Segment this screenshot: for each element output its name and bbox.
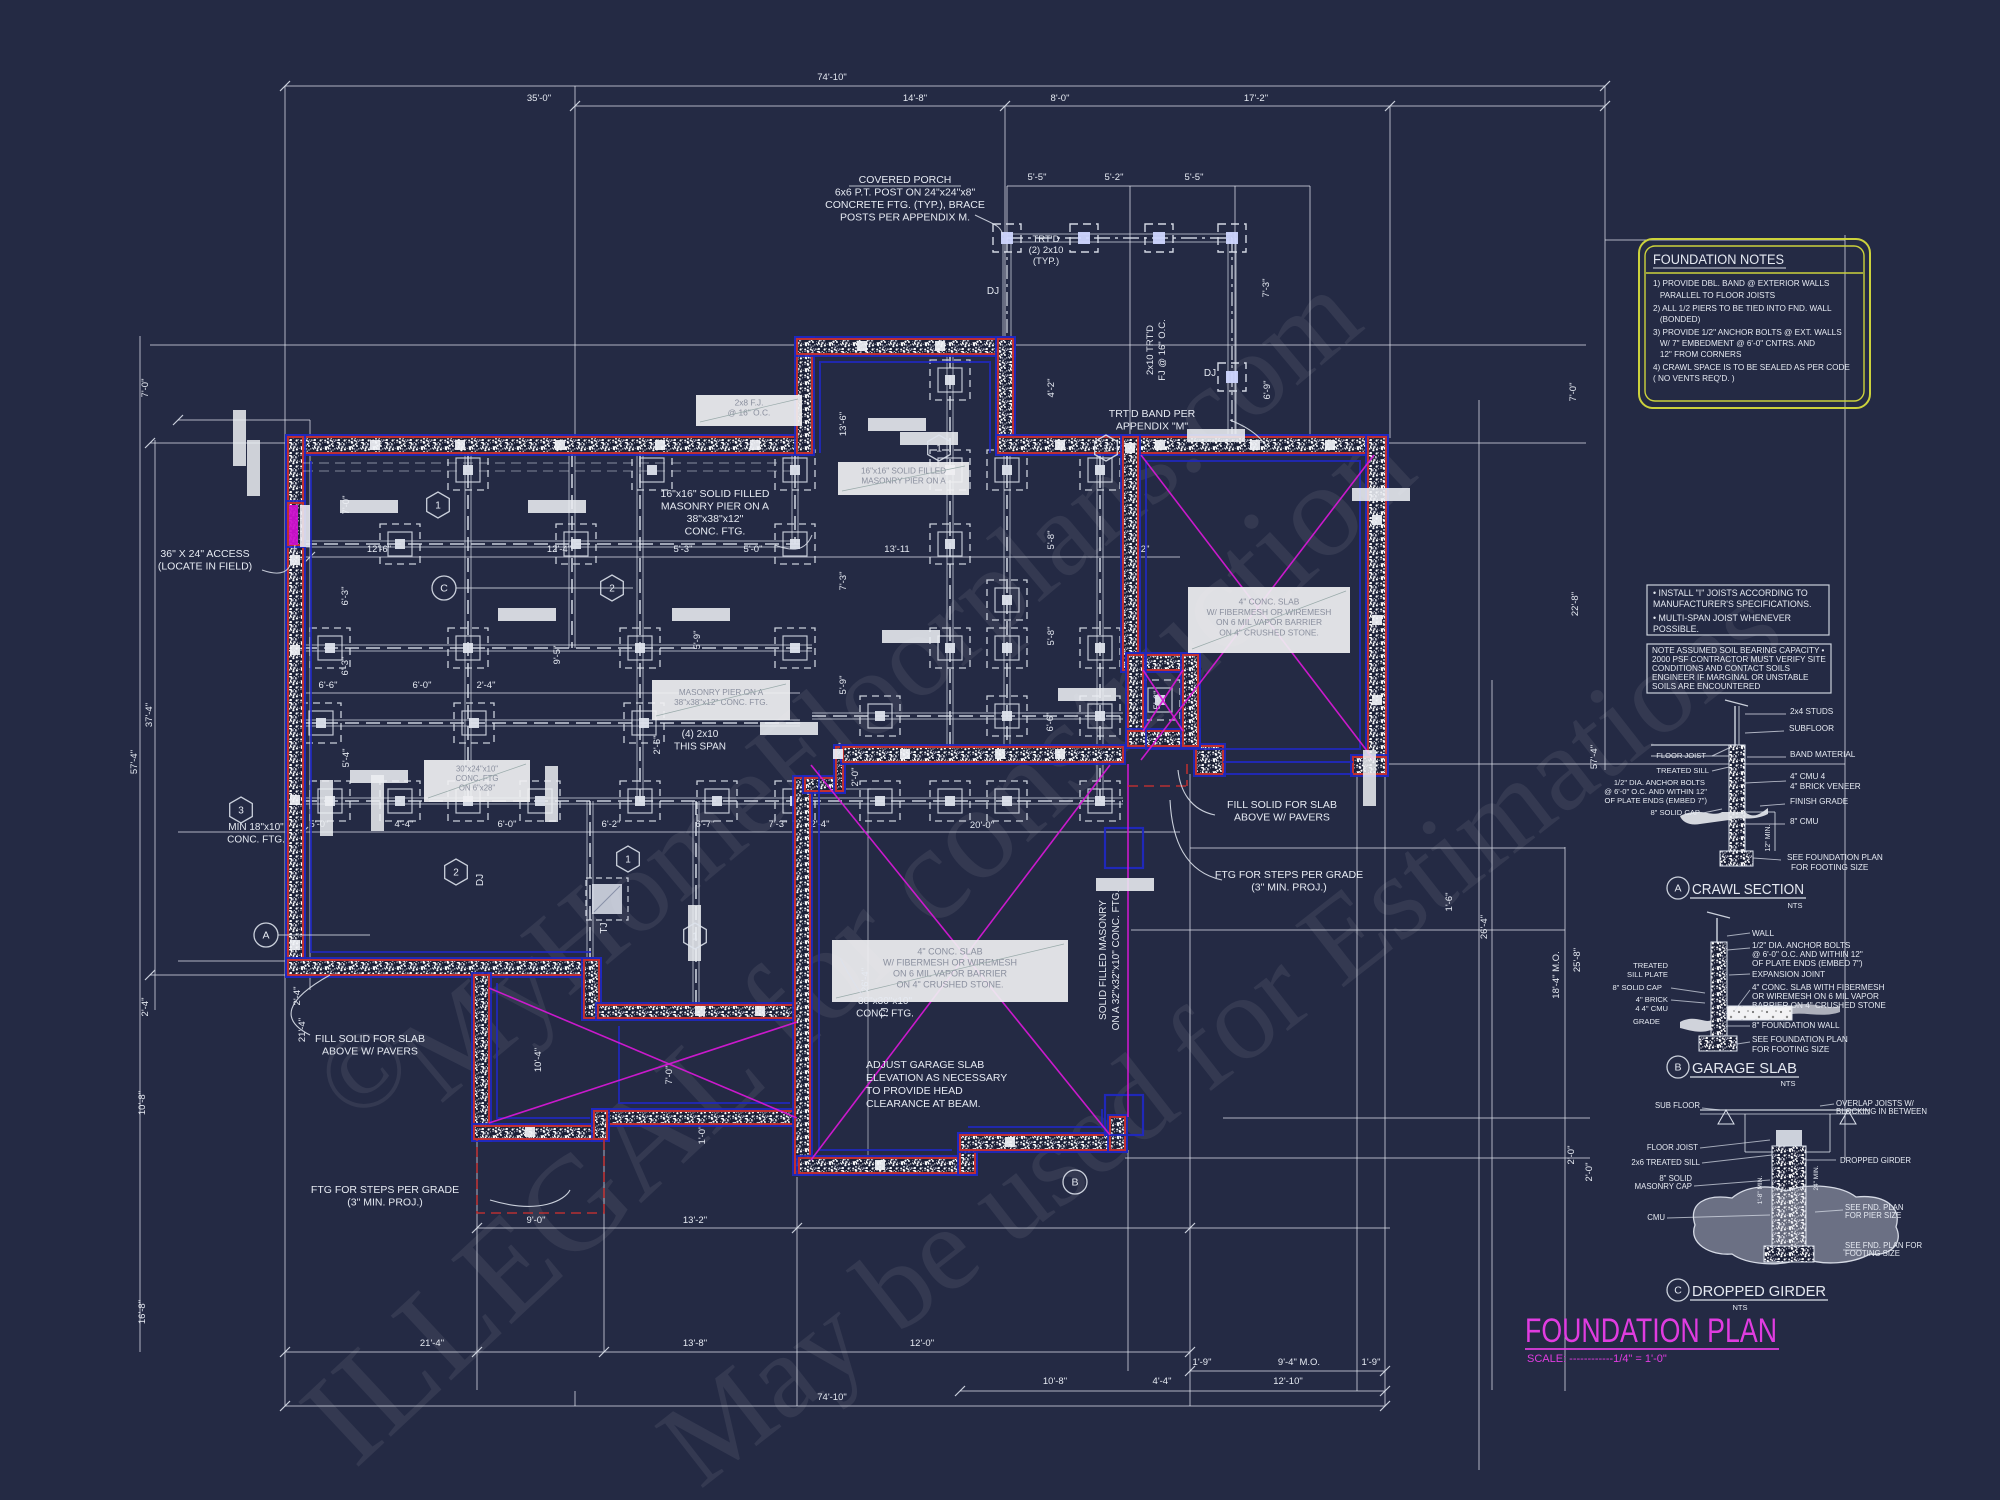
svg-text:5'-9": 5'-9" [838, 676, 849, 695]
svg-text:4" CMU 4: 4" CMU 4 [1790, 772, 1826, 781]
svg-text:NTS: NTS [1733, 1303, 1748, 1312]
svg-text:(LOCATE IN FIELD): (LOCATE IN FIELD) [158, 561, 252, 573]
svg-text:(TYP.): (TYP.) [1033, 256, 1059, 267]
svg-text:5'-3": 5'-3" [674, 544, 693, 555]
svg-text:ON 6"x28": ON 6"x28" [459, 784, 496, 793]
svg-text:BAND MATERIAL: BAND MATERIAL [1790, 750, 1856, 759]
svg-text:ABOVE W/ PAVERS: ABOVE W/ PAVERS [1234, 812, 1330, 824]
svg-text:CONC. FTG: CONC. FTG [456, 774, 499, 783]
svg-text:BARRIER ON 4" CRUSHED STONE: BARRIER ON 4" CRUSHED STONE [1752, 1001, 1886, 1010]
svg-text:WALL: WALL [1752, 929, 1774, 938]
svg-text:74'-10": 74'-10" [817, 72, 846, 83]
svg-text:7'-3": 7'-3" [1261, 279, 1272, 298]
svg-text:GARAGE SLAB: GARAGE SLAB [1692, 1060, 1797, 1077]
svg-text:4" BRICK VENEER: 4" BRICK VENEER [1790, 782, 1861, 791]
svg-text:FJ @ 16" O.C.: FJ @ 16" O.C. [1157, 319, 1168, 381]
svg-text:POSSIBLE.: POSSIBLE. [1653, 624, 1699, 634]
svg-text:2000 PSF CONTRACTOR MUST VERIF: 2000 PSF CONTRACTOR MUST VERIFY SITE [1652, 655, 1826, 664]
svg-text:CONC. FTG.: CONC. FTG. [856, 1009, 914, 1020]
svg-text:( NO VENTS REQ'D. ): ( NO VENTS REQ'D. ) [1653, 374, 1735, 383]
svg-text:• MULTI-SPAN JOIST WHENEVER: • MULTI-SPAN JOIST WHENEVER [1653, 613, 1791, 623]
svg-text:1: 1 [692, 932, 698, 943]
svg-text:SUBFLOOR: SUBFLOOR [1789, 724, 1834, 733]
svg-text:1/2" DIA. ANCHOR BOLTS: 1/2" DIA. ANCHOR BOLTS [1752, 941, 1851, 950]
svg-text:10'-8": 10'-8" [1043, 1376, 1067, 1387]
svg-text:@ 16" O.C.: @ 16" O.C. [728, 408, 771, 418]
svg-text:MANUFACTURER'S SPECIFICATIONS.: MANUFACTURER'S SPECIFICATIONS. [1653, 599, 1811, 609]
svg-text:57'-4": 57'-4" [1589, 745, 1600, 769]
svg-text:6x6 P.T. POST ON 24"x24"x8": 6x6 P.T. POST ON 24"x24"x8" [835, 187, 976, 199]
svg-text:ON A 32"x32"x10" CONC. FTG.: ON A 32"x32"x10" CONC. FTG. [1111, 890, 1122, 1031]
svg-text:NOTE ASSUMED SOIL BEARING CAPA: NOTE ASSUMED SOIL BEARING CAPACITY • [1652, 646, 1825, 655]
svg-text:OF PLATE ENDS (EMBED 7"): OF PLATE ENDS (EMBED 7") [1752, 959, 1863, 968]
svg-text:2'-4": 2'-4" [477, 680, 496, 691]
svg-text:13'-8": 13'-8" [683, 1338, 707, 1349]
svg-text:1'-8" MIN.: 1'-8" MIN. [1757, 1176, 1764, 1205]
svg-text:MASONRY PIER ON A: MASONRY PIER ON A [661, 501, 769, 513]
svg-text:TO PROVIDE HEAD: TO PROVIDE HEAD [866, 1085, 963, 1097]
svg-text:1: 1 [936, 444, 942, 455]
svg-text:(3" MIN. PROJ.): (3" MIN. PROJ.) [347, 1197, 422, 1209]
svg-text:38"x38"x12": 38"x38"x12" [687, 513, 744, 525]
svg-text:13'-2": 13'-2" [683, 1215, 707, 1226]
svg-text:TREATED SILL: TREATED SILL [1656, 766, 1709, 775]
svg-text:DJ: DJ [475, 874, 486, 886]
svg-text:7'-0": 7'-0" [140, 379, 151, 398]
svg-text:GRADE: GRADE [1633, 1017, 1660, 1026]
svg-text:FLOOR JOIST: FLOOR JOIST [1656, 751, 1706, 760]
svg-text:CRAWL SECTION: CRAWL SECTION [1692, 881, 1804, 898]
svg-text:FTG FOR STEPS PER GRADE: FTG FOR STEPS PER GRADE [1215, 869, 1363, 881]
svg-text:12" MIN.: 12" MIN. [1765, 824, 1772, 851]
svg-text:FTG FOR STEPS PER GRADE: FTG FOR STEPS PER GRADE [311, 1184, 459, 1196]
svg-text:4" CONC. SLAB: 4" CONC. SLAB [917, 946, 982, 956]
svg-text:TRT'D: TRT'D [1033, 234, 1060, 245]
svg-text:16'-8": 16'-8" [137, 1300, 148, 1324]
svg-text:2: 2 [453, 868, 459, 879]
svg-text:TREATED: TREATED [1633, 961, 1668, 970]
svg-text:6'-2": 6'-2" [602, 819, 621, 830]
svg-text:MIN 18"x10": MIN 18"x10" [228, 822, 284, 833]
svg-text:@ 6'-0" O.C. AND WITHIN 12": @ 6'-0" O.C. AND WITHIN 12" [1604, 787, 1707, 796]
svg-text:2x10 TRT'D: 2x10 TRT'D [1145, 325, 1156, 375]
svg-text:30"x30"x10": 30"x30"x10" [858, 996, 912, 1007]
svg-text:26'-4": 26'-4" [860, 968, 871, 992]
svg-text:NTS: NTS [1781, 1079, 1796, 1088]
svg-text:1: 1 [625, 855, 631, 866]
svg-text:10'-8": 10'-8" [137, 1091, 148, 1115]
svg-text:MASONRY CAP: MASONRY CAP [1635, 1182, 1692, 1191]
svg-text:FILL SOLID FOR SLAB: FILL SOLID FOR SLAB [315, 1033, 425, 1045]
svg-text:ENGINEER IF MARGINAL OR UNSTAB: ENGINEER IF MARGINAL OR UNSTABLE [1652, 673, 1809, 682]
svg-text:B: B [1071, 1177, 1078, 1189]
svg-text:W/ FIBERMESH OR WIREMESH: W/ FIBERMESH OR WIREMESH [883, 957, 1017, 967]
svg-text:4 4" CMU: 4 4" CMU [1635, 1004, 1668, 1013]
svg-text:35'-0": 35'-0" [527, 93, 551, 104]
svg-text:6'-9": 6'-9" [1262, 381, 1273, 400]
svg-text:5'-4": 5'-4" [341, 749, 352, 768]
svg-text:16"x16" SOLID FILLED: 16"x16" SOLID FILLED [660, 488, 769, 500]
svg-text:20'-0": 20'-0" [970, 820, 994, 831]
svg-text:8'-0": 8'-0" [1051, 93, 1070, 104]
svg-text:10'-4": 10'-4" [533, 1048, 544, 1072]
svg-text:1'-9": 1'-9" [1362, 1357, 1381, 1368]
svg-text:1/2" DIA. ANCHOR BOLTS: 1/2" DIA. ANCHOR BOLTS [1614, 778, 1705, 787]
svg-text:7'-0": 7'-0" [1568, 383, 1579, 402]
svg-text:2x4 STUDS: 2x4 STUDS [1790, 707, 1834, 716]
svg-text:6'-3": 6'-3" [340, 587, 351, 606]
svg-text:5'-0": 5'-0" [744, 544, 763, 555]
svg-text:SILL PLATE: SILL PLATE [1627, 970, 1668, 979]
svg-text:DJ: DJ [987, 286, 999, 297]
svg-text:6'-0": 6'-0" [413, 680, 432, 691]
svg-text:37'-4": 37'-4" [144, 703, 155, 727]
svg-text:SUB FLOOR: SUB FLOOR [1655, 1101, 1700, 1110]
svg-text:4'-2": 4'-2" [1046, 379, 1057, 398]
svg-text:12'-10": 12'-10" [1273, 1376, 1302, 1387]
svg-text:CONC. FTG.: CONC. FTG. [227, 835, 285, 846]
svg-text:@ 6'-0" O.C. AND WITHIN 12": @ 6'-0" O.C. AND WITHIN 12" [1752, 950, 1863, 959]
svg-text:24" MIN.: 24" MIN. [1813, 1165, 1820, 1190]
svg-text:W/ 7" EMBEDMENT @ 6'-0" CNTRS.: W/ 7" EMBEDMENT @ 6'-0" CNTRS. AND [1653, 339, 1815, 348]
svg-text:C: C [1674, 1285, 1682, 1297]
svg-text:SOILS ARE ENCOUNTERED: SOILS ARE ENCOUNTERED [1652, 682, 1760, 691]
svg-text:74'-10": 74'-10" [817, 1392, 846, 1403]
svg-text:COVERED PORCH: COVERED PORCH [859, 174, 952, 186]
svg-text:8" CMU: 8" CMU [1790, 817, 1818, 826]
svg-text:8" SOLID CAP: 8" SOLID CAP [1650, 808, 1700, 817]
svg-text:3) PROVIDE 1/2" ANCHOR BOLTS @: 3) PROVIDE 1/2" ANCHOR BOLTS @ EXT. WALL… [1653, 328, 1842, 337]
svg-text:• INSTALL "I" JOISTS ACCORDIN: • INSTALL "I" JOISTS ACCORDING TO [1653, 588, 1808, 598]
svg-text:CMU: CMU [1647, 1213, 1665, 1222]
svg-text:4) CRAWL SPACE IS TO BE SEALED: 4) CRAWL SPACE IS TO BE SEALED AS PER CO… [1653, 363, 1850, 372]
svg-text:(3" MIN. PROJ.): (3" MIN. PROJ.) [1251, 882, 1326, 894]
svg-text:17'-2": 17'-2" [1244, 93, 1268, 104]
svg-text:22'-8": 22'-8" [1570, 592, 1581, 616]
svg-text:TJ: TJ [599, 922, 610, 933]
svg-text:B: B [1674, 1062, 1681, 1074]
svg-text:5'-5": 5'-5" [1185, 172, 1204, 183]
svg-text:6'-0": 6'-0" [498, 819, 517, 830]
svg-text:38"x38"x12" CONC. FTG.: 38"x38"x12" CONC. FTG. [674, 698, 768, 707]
svg-text:12" FROM CORNERS: 12" FROM CORNERS [1653, 350, 1742, 359]
svg-text:30"x24"x10": 30"x24"x10" [456, 764, 498, 773]
svg-text:CONC. FTG.: CONC. FTG. [685, 526, 746, 538]
svg-text:5'-2": 5'-2" [1105, 172, 1124, 183]
svg-text:1'-6": 1'-6" [1444, 893, 1455, 912]
svg-text:4" CONC. SLAB WITH FIBERMESH: 4" CONC. SLAB WITH FIBERMESH [1752, 983, 1885, 992]
svg-text:6'-6": 6'-6" [319, 680, 338, 691]
svg-text:2x6 TREATED SILL: 2x6 TREATED SILL [1631, 1158, 1700, 1167]
svg-text:13'-11: 13'-11 [884, 544, 909, 555]
svg-text:PARALLEL TO FLOOR JOISTS: PARALLEL TO FLOOR JOISTS [1653, 291, 1776, 300]
svg-text:FOR FOOTING SIZE: FOR FOOTING SIZE [1791, 863, 1869, 872]
svg-text:(BONDED): (BONDED) [1653, 315, 1701, 324]
svg-text:DROPPED GIRDER: DROPPED GIRDER [1692, 1283, 1826, 1300]
svg-text:2'-0": 2'-0" [1584, 1163, 1595, 1182]
svg-text:1: 1 [1103, 444, 1109, 455]
svg-text:FLOOR JOIST: FLOOR JOIST [1647, 1143, 1698, 1152]
svg-text:5'-5": 5'-5" [1028, 172, 1047, 183]
svg-text:57'-4": 57'-4" [129, 750, 140, 774]
svg-text:FOR PIER SIZE: FOR PIER SIZE [1845, 1211, 1901, 1220]
svg-text:25'-8": 25'-8" [1572, 948, 1583, 972]
svg-text:9'-4" M.O.: 9'-4" M.O. [1278, 1357, 1320, 1368]
svg-text:4" CONC. SLAB: 4" CONC. SLAB [1239, 596, 1300, 606]
svg-text:21'-4": 21'-4" [420, 1338, 444, 1349]
svg-text:ON 4" CRUSHED STONE.: ON 4" CRUSHED STONE. [896, 980, 1003, 990]
svg-text:4" BRICK: 4" BRICK [1636, 995, 1668, 1004]
svg-text:CONCRETE FTG. (TYP.), BRACE: CONCRETE FTG. (TYP.), BRACE [825, 199, 985, 211]
svg-text:OF PLATE ENDS (EMBED 7"): OF PLATE ENDS (EMBED 7") [1604, 796, 1707, 805]
svg-text:ON 4" CRUSHED STONE.: ON 4" CRUSHED STONE. [1219, 628, 1319, 638]
svg-text:8" FOUNDATION WALL: 8" FOUNDATION WALL [1752, 1021, 1840, 1030]
svg-text:FINISH GRADE: FINISH GRADE [1790, 797, 1849, 806]
svg-text:BLOCKING IN BETWEEN: BLOCKING IN BETWEEN [1836, 1107, 1927, 1116]
svg-text:1: 1 [435, 501, 441, 512]
svg-text:SCALE: ------------1/4" = 1'-0: SCALE: ------------1/4" = 1'-0" [1527, 1353, 1667, 1365]
svg-text:12'-4": 12'-4" [547, 544, 571, 555]
svg-text:POSTS PER APPENDIX M.: POSTS PER APPENDIX M. [840, 212, 970, 224]
svg-text:THIS SPAN: THIS SPAN [674, 742, 726, 753]
svg-text:FILL SOLID FOR SLAB: FILL SOLID FOR SLAB [1227, 799, 1337, 811]
svg-text:2'-4": 2'-4" [292, 987, 303, 1006]
svg-text:CONDITIONS AND CONTACT SOILS: CONDITIONS AND CONTACT SOILS [1652, 664, 1791, 673]
svg-text:W/ FIBERMESH OR WIREMESH: W/ FIBERMESH OR WIREMESH [1207, 607, 1332, 617]
svg-text:26'-4": 26'-4" [1479, 915, 1490, 939]
svg-text:ON 6 MIL VAPOR BARRIER: ON 6 MIL VAPOR BARRIER [1216, 617, 1322, 627]
svg-text:DROPPED GIRDER: DROPPED GIRDER [1840, 1156, 1911, 1165]
svg-text:5'-9": 5'-9" [692, 631, 703, 650]
svg-text:NTS: NTS [1788, 901, 1803, 910]
svg-text:SEE FOUNDATION PLAN: SEE FOUNDATION PLAN [1787, 853, 1883, 862]
svg-text:5'-8": 5'-8" [1046, 627, 1057, 646]
svg-text:(4) 2x10: (4) 2x10 [682, 729, 719, 740]
svg-text:SOLID FILLED MASONRY: SOLID FILLED MASONRY [1098, 900, 1109, 1020]
svg-text:DJ: DJ [1204, 368, 1216, 379]
svg-text:A: A [262, 930, 269, 942]
svg-text:2'-0": 2'-0" [1566, 1146, 1577, 1165]
svg-text:(2) 2x10: (2) 2x10 [1029, 245, 1064, 256]
svg-text:CLEARANCE AT BEAM.: CLEARANCE AT BEAM. [866, 1098, 981, 1110]
svg-text:7'-0": 7'-0" [664, 1066, 675, 1085]
svg-text:5'-8": 5'-8" [1046, 531, 1057, 550]
svg-text:9'-0": 9'-0" [527, 1215, 546, 1226]
svg-text:ADJUST GARAGE SLAB: ADJUST GARAGE SLAB [866, 1059, 984, 1071]
svg-text:ON 6 MIL VAPOR BARRIER: ON 6 MIL VAPOR BARRIER [893, 969, 1008, 979]
svg-text:FOUNDATION NOTES: FOUNDATION NOTES [1653, 252, 1784, 267]
svg-text:OR WIREMESH ON 6 MIL VAPOR: OR WIREMESH ON 6 MIL VAPOR [1752, 992, 1879, 1001]
svg-text:ABOVE W/ PAVERS: ABOVE W/ PAVERS [322, 1046, 418, 1058]
svg-text:ELEVATION AS NECESSARY: ELEVATION AS NECESSARY [866, 1072, 1007, 1084]
svg-text:APPENDIX "M": APPENDIX "M" [1116, 421, 1188, 433]
svg-text:FOR FOOTING SIZE: FOR FOOTING SIZE [1752, 1045, 1830, 1054]
svg-text:2'-6": 2'-6" [652, 736, 663, 755]
svg-text:12'-0": 12'-0" [910, 1338, 934, 1349]
svg-text:1'-9": 1'-9" [1193, 1357, 1212, 1368]
svg-text:FOUNDATION PLAN: FOUNDATION PLAN [1525, 1312, 1777, 1350]
svg-text:TRT'D BAND PER: TRT'D BAND PER [1109, 408, 1196, 420]
svg-text:14'-8": 14'-8" [903, 93, 927, 104]
svg-text:2: 2 [609, 584, 615, 595]
svg-text:4'-4": 4'-4" [1153, 1376, 1172, 1387]
svg-text:1'-0": 1'-0" [697, 1126, 708, 1145]
svg-text:13'-6": 13'-6" [838, 412, 849, 436]
svg-text:36" X 24" ACCESS: 36" X 24" ACCESS [160, 548, 249, 560]
svg-text:SEE FOUNDATION PLAN: SEE FOUNDATION PLAN [1752, 1035, 1848, 1044]
svg-text:18'-4" M.O.: 18'-4" M.O. [1551, 951, 1562, 998]
svg-text:EXPANSION JOINT: EXPANSION JOINT [1752, 970, 1825, 979]
svg-text:C: C [440, 583, 448, 595]
svg-text:2) ALL 1/2 PIERS TO BE TIED IN: 2) ALL 1/2 PIERS TO BE TIED INTO FND. WA… [1653, 304, 1832, 313]
svg-text:2x8 F.J.: 2x8 F.J. [735, 397, 764, 407]
svg-text:1) PROVIDE DBL. BAND @ EXTERIO: 1) PROVIDE DBL. BAND @ EXTERIOR WALLS [1653, 279, 1830, 288]
svg-text:8" SOLID CAP: 8" SOLID CAP [1612, 983, 1662, 992]
svg-text:16"x16" SOLID FILLED: 16"x16" SOLID FILLED [861, 466, 946, 475]
svg-text:2'-4": 2'-4" [140, 998, 151, 1017]
svg-text:7'-3": 7'-3" [838, 572, 849, 591]
svg-text:A: A [1674, 883, 1681, 895]
svg-text:3: 3 [238, 806, 244, 817]
